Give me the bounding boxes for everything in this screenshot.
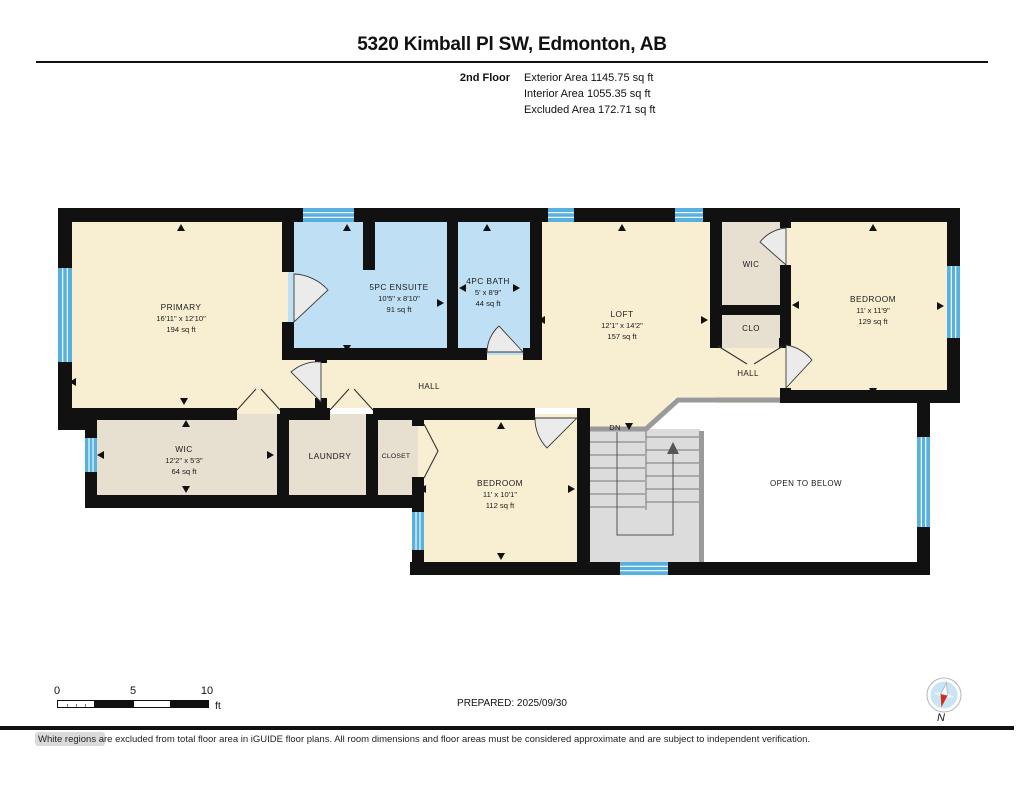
label-bedroom-right-area: 129 sq ft	[858, 317, 888, 326]
scale-unit: ft	[215, 700, 221, 712]
footer-divider	[0, 726, 1014, 730]
stairs	[590, 429, 700, 562]
label-wic-left-area: 64 sq ft	[172, 467, 198, 476]
label-primary-dims: 16'11" x 12'10"	[156, 314, 206, 323]
label-bedroom-bottom-area: 112 sq ft	[486, 501, 515, 510]
label-dn: DN	[609, 423, 620, 432]
label-bath-area: 44 sq ft	[476, 299, 502, 308]
label-loft-dims: 12'1" x 14'2"	[601, 321, 643, 330]
scale-tick-5: 5	[127, 685, 139, 697]
label-ensuite-area: 91 sq ft	[387, 305, 413, 314]
label-open-to-below: OPEN TO BELOW	[770, 479, 842, 488]
scale-seg-3	[133, 700, 171, 708]
label-bedroom-right: BEDROOM	[850, 294, 896, 304]
label-clo: CLO	[742, 324, 760, 333]
disclaimer-text: White regions are excluded from total fl…	[38, 734, 998, 745]
scale-tick-0: 0	[51, 685, 63, 697]
label-loft-area: 157 sq ft	[607, 332, 637, 341]
label-hall-right: HALL	[737, 369, 759, 378]
floorplan-drawing: PRIMARY 16'11" x 12'10" 194 sq ft 5PC EN…	[0, 0, 1024, 791]
label-ensuite-dims: 10'5" x 8'10"	[378, 294, 420, 303]
scale-seg-2	[95, 700, 133, 708]
label-bedroom-bottom: BEDROOM	[477, 478, 523, 488]
label-hall: HALL	[418, 382, 440, 391]
label-bath: 4PC BATH	[466, 276, 510, 286]
label-wic-left-dims: 12'2" x 5'3"	[165, 456, 203, 465]
floorplan-page: 5320 Kimball Pl SW, Edmonton, AB 2nd Flo…	[0, 0, 1024, 791]
stairs-floor	[590, 429, 700, 562]
label-primary-area: 194 sq ft	[166, 325, 196, 334]
label-ensuite: 5PC ENSUITE	[369, 282, 428, 292]
compass-north-label: N	[918, 712, 964, 724]
compass-rose-icon	[927, 678, 961, 712]
label-wic-right: WIC	[743, 260, 760, 269]
label-bedroom-right-dims: 11' x 11'9"	[856, 306, 890, 315]
label-wic-left: WIC	[175, 444, 192, 454]
scale-bar	[57, 700, 209, 708]
label-loft: LOFT	[610, 309, 633, 319]
scale-tick-10: 10	[199, 685, 215, 697]
prepared-date: PREPARED: 2025/09/30	[412, 698, 612, 709]
label-bath-dims: 5' x 8'9"	[475, 288, 502, 297]
scale-seg-1	[57, 700, 95, 708]
label-primary: PRIMARY	[161, 302, 202, 312]
scale-seg-4	[171, 700, 209, 708]
label-bedroom-bottom-dims: 11' x 10'1"	[483, 490, 517, 499]
label-closet: CLOSET	[382, 453, 410, 460]
label-laundry: LAUNDRY	[309, 451, 352, 461]
